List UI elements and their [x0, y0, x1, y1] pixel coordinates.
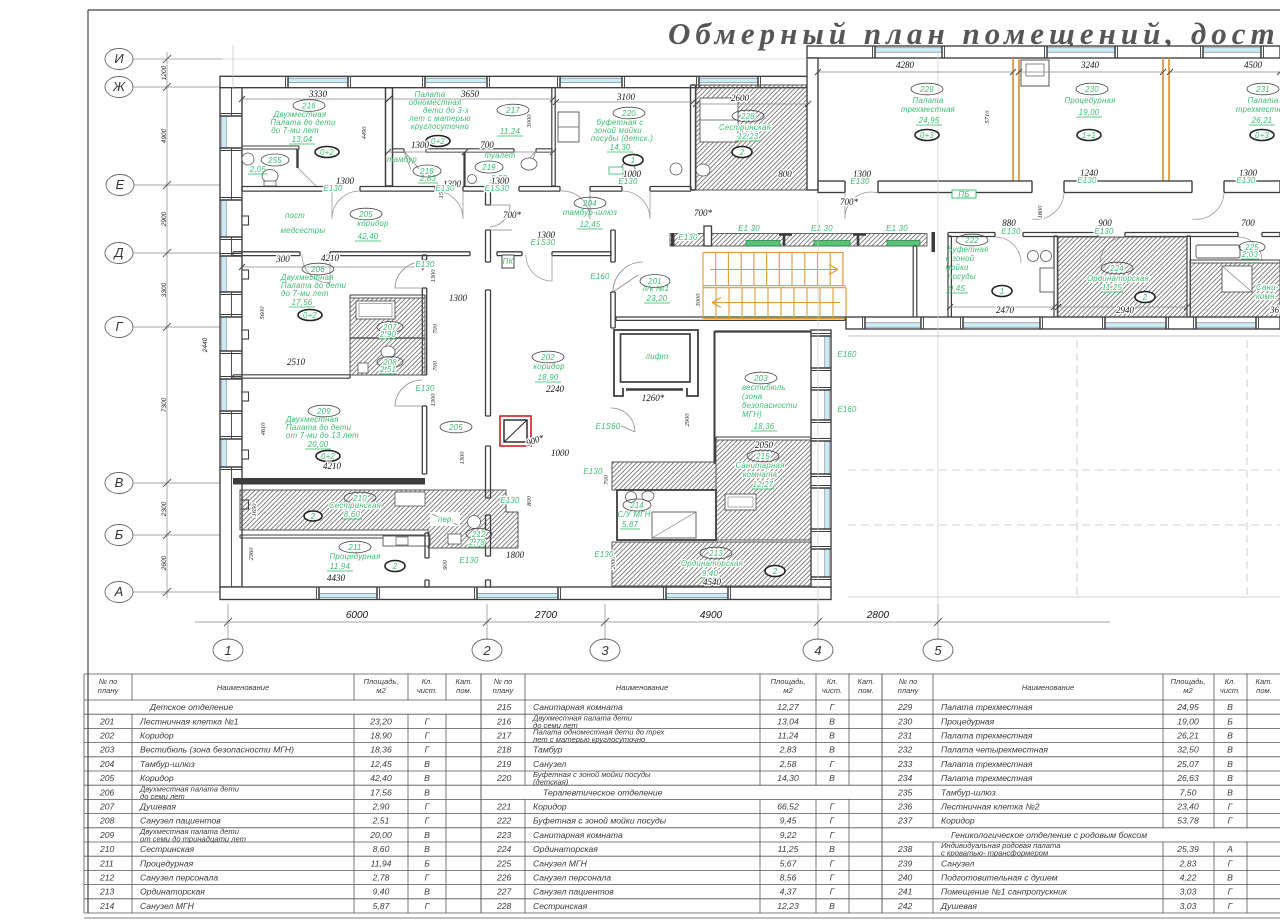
svg-text:№ по: № по — [99, 677, 118, 686]
svg-text:23,40: 23,40 — [1176, 802, 1199, 812]
svg-text:Б: Б — [424, 858, 430, 868]
svg-text:Геникологическое отделение с р: Геникологическое отделение с родовым бок… — [951, 830, 1147, 840]
svg-text:В: В — [424, 787, 430, 797]
svg-text:Лестничная клетка №2: Лестничная клетка №2 — [940, 802, 1040, 812]
svg-text:234: 234 — [897, 773, 913, 783]
svg-text:230: 230 — [1084, 85, 1099, 94]
svg-text:от семи до тринадцати лет: от семи до тринадцати лет — [140, 835, 246, 844]
svg-text:Санитарная: Санитарная — [735, 461, 785, 470]
svg-text:вестибюль: вестибюль — [742, 383, 786, 392]
svg-text:204: 204 — [99, 759, 115, 769]
svg-text:700: 700 — [480, 140, 494, 150]
svg-text:240: 240 — [897, 873, 913, 883]
svg-text:5,67: 5,67 — [780, 858, 798, 868]
svg-text:224: 224 — [496, 844, 512, 854]
svg-text:11,94: 11,94 — [371, 858, 392, 868]
svg-text:E130: E130 — [415, 260, 435, 269]
svg-text:700*: 700* — [694, 208, 713, 218]
svg-text:В: В — [1227, 773, 1233, 783]
svg-text:700: 700 — [1241, 218, 1255, 228]
svg-text:1300: 1300 — [411, 140, 430, 150]
svg-text:В: В — [424, 773, 430, 783]
svg-text:0+2: 0+2 — [431, 137, 445, 146]
svg-text:2: 2 — [310, 512, 316, 521]
svg-text:В: В — [424, 887, 430, 897]
svg-text:Кат.: Кат. — [1255, 677, 1272, 686]
svg-text:Санузел персонала: Санузел персонала — [140, 873, 218, 883]
svg-text:231: 231 — [897, 731, 913, 741]
svg-text:9,45: 9,45 — [949, 284, 966, 293]
svg-text:32,50: 32,50 — [1177, 745, 1199, 755]
svg-text:коридор: коридор — [357, 219, 389, 228]
svg-text:м2: м2 — [1183, 686, 1193, 695]
svg-text:Палата: Палата — [913, 96, 944, 105]
svg-text:1300: 1300 — [430, 393, 437, 407]
svg-text:2600: 2600 — [731, 93, 750, 103]
svg-text:208: 208 — [99, 816, 115, 826]
svg-text:2,83: 2,83 — [779, 745, 797, 755]
svg-text:E130: E130 — [618, 177, 638, 186]
svg-text:Палата трехместная: Палата трехместная — [941, 731, 1033, 741]
svg-text:215: 215 — [496, 702, 512, 712]
svg-text:безопасности: безопасности — [742, 401, 798, 410]
svg-text:4210: 4210 — [321, 253, 340, 263]
svg-text:14,30: 14,30 — [610, 143, 631, 152]
svg-text:E1S30: E1S30 — [531, 238, 556, 247]
svg-text:трехместная: трехместная — [1236, 105, 1280, 114]
svg-text:2600: 2600 — [161, 555, 168, 571]
svg-text:E130: E130 — [415, 384, 435, 393]
svg-text:5,87: 5,87 — [622, 520, 639, 529]
svg-text:2050: 2050 — [755, 440, 774, 450]
svg-text:Палата трехместная: Палата трехместная — [941, 773, 1033, 783]
svg-text:9,22: 9,22 — [780, 830, 797, 840]
svg-text:Кл.: Кл. — [827, 677, 838, 686]
svg-text:19,00: 19,00 — [1177, 716, 1199, 726]
svg-text:4490: 4490 — [361, 126, 368, 140]
svg-text:2,51: 2,51 — [379, 365, 396, 374]
svg-text:трехместная: трехместная — [901, 105, 956, 114]
svg-text:1300: 1300 — [449, 293, 468, 303]
svg-text:с кроватью- трансформером: с кроватью- трансформером — [941, 849, 1049, 858]
svg-text:215: 215 — [755, 452, 770, 461]
svg-text:А: А — [1226, 844, 1233, 854]
svg-text:13,04: 13,04 — [777, 716, 799, 726]
svg-text:Сестринская: Сестринская — [140, 844, 195, 854]
svg-text:2: 2 — [392, 562, 398, 571]
svg-text:В: В — [829, 716, 835, 726]
svg-text:5710: 5710 — [984, 110, 991, 124]
svg-text:2470: 2470 — [996, 305, 1015, 315]
svg-text:1800: 1800 — [1037, 205, 1044, 219]
svg-text:2,83: 2,83 — [1179, 858, 1197, 868]
svg-text:5: 5 — [934, 643, 942, 658]
svg-text:1300: 1300 — [459, 451, 466, 465]
svg-text:219: 219 — [481, 163, 496, 172]
svg-text:Ординаторская: Ординаторская — [533, 844, 598, 854]
svg-text:0+2: 0+2 — [303, 311, 317, 320]
svg-text:В: В — [1227, 702, 1233, 712]
svg-text:4210: 4210 — [323, 461, 342, 471]
svg-text:Терапевтическое отделение: Терапевтическое отделение — [543, 787, 663, 797]
svg-text:220: 220 — [621, 109, 636, 118]
svg-text:202: 202 — [99, 731, 115, 741]
svg-text:23,20: 23,20 — [646, 294, 668, 303]
svg-text:посуды: посуды — [948, 272, 976, 281]
svg-text:2240: 2240 — [546, 384, 565, 394]
svg-text:233: 233 — [897, 759, 913, 769]
svg-text:3670: 3670 — [1269, 305, 1280, 315]
svg-text:№ по: № по — [899, 677, 918, 686]
svg-text:В: В — [829, 745, 835, 755]
svg-text:Кл.: Кл. — [1225, 677, 1236, 686]
svg-text:25,39: 25,39 — [1176, 844, 1199, 854]
svg-text:3000: 3000 — [695, 293, 702, 308]
svg-text:Площадь,: Площадь, — [1170, 677, 1205, 686]
svg-text:217: 217 — [496, 731, 513, 741]
svg-text:В: В — [424, 844, 430, 854]
svg-text:14,30: 14,30 — [777, 773, 799, 783]
svg-text:комната: комната — [743, 470, 778, 479]
svg-text:до семи лет: до семи лет — [140, 792, 185, 801]
svg-text:5,87: 5,87 — [373, 901, 391, 911]
svg-text:В: В — [1227, 731, 1233, 741]
svg-text:E1S60: E1S60 — [596, 422, 621, 431]
svg-text:E1 30: E1 30 — [811, 224, 833, 233]
svg-text:2,58: 2,58 — [779, 759, 797, 769]
svg-text:м2: м2 — [376, 686, 386, 695]
svg-text:Санузел МГН: Санузел МГН — [140, 901, 195, 911]
svg-text:213: 213 — [99, 887, 115, 897]
svg-text:23,20: 23,20 — [369, 716, 392, 726]
svg-text:медсестры: медсестры — [281, 226, 326, 235]
svg-text:Процедурная: Процедурная — [1064, 96, 1116, 105]
svg-text:E160: E160 — [837, 350, 857, 359]
svg-text:плану: плану — [493, 686, 515, 695]
svg-text:2360: 2360 — [248, 547, 255, 561]
svg-text:2: 2 — [739, 148, 745, 157]
svg-text:от 7-ми до 13 лет: от 7-ми до 13 лет — [286, 431, 359, 440]
svg-text:посуды (детск.): посуды (детск.) — [591, 134, 653, 143]
svg-text:2300: 2300 — [161, 501, 168, 517]
svg-text:3240: 3240 — [1080, 60, 1100, 70]
svg-text:Кат.: Кат. — [857, 677, 874, 686]
svg-text:66,52: 66,52 — [777, 802, 799, 812]
svg-text:8,60: 8,60 — [373, 844, 390, 854]
svg-text:229: 229 — [919, 85, 934, 94]
svg-text:216: 216 — [496, 716, 512, 726]
svg-text:700*: 700* — [503, 210, 522, 220]
svg-text:Кл.: Кл. — [422, 677, 433, 686]
svg-text:203: 203 — [753, 374, 768, 383]
svg-text:Санитарная комната: Санитарная комната — [533, 702, 623, 712]
svg-text:Б: Б — [115, 527, 124, 542]
svg-text:26,21: 26,21 — [1251, 116, 1273, 125]
svg-text:тамбур: тамбур — [387, 155, 417, 164]
svg-text:800: 800 — [778, 169, 792, 179]
svg-text:3000: 3000 — [526, 114, 533, 129]
svg-text:12,45: 12,45 — [580, 220, 601, 229]
svg-text:53,78: 53,78 — [1177, 816, 1199, 826]
svg-text:чист.: чист. — [1220, 686, 1240, 695]
svg-text:ПК: ПК — [503, 257, 514, 266]
svg-text:2: 2 — [1142, 293, 1148, 302]
svg-text:пост: пост — [285, 211, 305, 220]
svg-text:4430: 4430 — [327, 573, 346, 583]
svg-text:В: В — [1227, 873, 1233, 883]
svg-text:Тамбур-шлюз: Тамбур-шлюз — [941, 787, 996, 797]
svg-text:230: 230 — [897, 716, 913, 726]
svg-text:Ординаторская: Ординаторская — [681, 559, 744, 568]
svg-text:E1 30: E1 30 — [886, 224, 908, 233]
svg-text:4500: 4500 — [1244, 60, 1263, 70]
svg-text:E160: E160 — [837, 405, 857, 414]
svg-text:26,21: 26,21 — [1176, 731, 1199, 741]
svg-text:Буфетная с зоной мойки посуды: Буфетная с зоной мойки посуды — [533, 816, 667, 826]
svg-text:18,36: 18,36 — [754, 422, 775, 431]
svg-text:Буфетная: Буфетная — [948, 245, 990, 254]
svg-text:2510: 2510 — [287, 357, 306, 367]
svg-text:E130: E130 — [1236, 176, 1256, 185]
svg-text:В: В — [1227, 787, 1233, 797]
svg-text:227: 227 — [496, 887, 513, 897]
svg-text:228: 228 — [740, 112, 755, 121]
svg-text:Ординаторская: Ординаторская — [140, 887, 205, 897]
svg-text:Помещение №1 санпропускник: Помещение №1 санпропускник — [941, 887, 1068, 897]
svg-text:12,27: 12,27 — [753, 480, 774, 489]
svg-text:E130: E130 — [1094, 227, 1114, 236]
svg-text:Душевая: Душевая — [940, 901, 977, 911]
svg-text:24,95: 24,95 — [1176, 702, 1199, 712]
svg-text:26,63: 26,63 — [1176, 773, 1199, 783]
svg-text:лифт: лифт — [645, 352, 669, 361]
svg-text:1: 1 — [1000, 287, 1005, 296]
svg-text:E1S30: E1S30 — [485, 184, 510, 193]
svg-text:до 7-ми лет: до 7-ми лет — [271, 126, 319, 135]
svg-text:1: 1 — [631, 156, 636, 165]
svg-text:круглосуточно: круглосуточно — [411, 122, 470, 131]
svg-text:чист.: чист. — [822, 686, 842, 695]
svg-text:2: 2 — [772, 567, 778, 576]
svg-text:И: И — [114, 51, 124, 66]
svg-text:3,03: 3,03 — [1180, 901, 1197, 911]
svg-text:17,56: 17,56 — [292, 298, 313, 307]
svg-text:0+3: 0+3 — [920, 131, 934, 140]
svg-text:пом.: пом. — [1256, 686, 1272, 695]
svg-text:тамбур-шлюз: тамбур-шлюз — [563, 208, 617, 217]
svg-text:2900: 2900 — [684, 413, 691, 427]
svg-text:Площадь,: Площадь, — [770, 677, 805, 686]
svg-text:2,90: 2,90 — [379, 330, 397, 339]
svg-text:E1 30: E1 30 — [738, 224, 760, 233]
svg-text:4900: 4900 — [700, 610, 723, 621]
svg-text:1800: 1800 — [506, 550, 525, 560]
svg-text:0+3: 0+3 — [1255, 131, 1269, 140]
svg-text:4610: 4610 — [260, 422, 267, 436]
svg-text:(зона: (зона — [742, 392, 763, 401]
svg-text:205: 205 — [448, 423, 463, 432]
svg-text:1000: 1000 — [551, 448, 570, 458]
svg-text:3,03: 3,03 — [1180, 887, 1197, 897]
svg-text:Ж: Ж — [112, 79, 126, 94]
svg-text:18,36: 18,36 — [370, 745, 392, 755]
svg-text:E130: E130 — [459, 556, 479, 565]
svg-text:Процедурная: Процедурная — [941, 716, 995, 726]
svg-text:Санузел пациентов: Санузел пациентов — [533, 887, 614, 897]
svg-text:3300: 3300 — [161, 282, 168, 297]
svg-text:24,95: 24,95 — [918, 116, 940, 125]
svg-text:238: 238 — [897, 844, 913, 854]
svg-text:800: 800 — [526, 495, 533, 506]
svg-text:2,51: 2,51 — [372, 816, 390, 826]
svg-text:С/У МГН: С/У МГН — [617, 510, 650, 519]
svg-text:225: 225 — [496, 858, 512, 868]
svg-text:205: 205 — [358, 210, 373, 219]
svg-text:222: 222 — [964, 236, 979, 245]
svg-text:255: 255 — [267, 156, 282, 165]
svg-text:2,83: 2,83 — [419, 174, 437, 183]
svg-text:Сестринская: Сестринская — [329, 501, 382, 510]
svg-text:4900: 4900 — [161, 128, 168, 143]
svg-text:Вестибюль (зона безопасности М: Вестибюль (зона безопасности МГН) — [140, 745, 294, 755]
svg-text:42,40: 42,40 — [370, 773, 392, 783]
svg-text:1650: 1650 — [251, 503, 258, 517]
svg-text:220: 220 — [496, 773, 512, 783]
svg-text:1200: 1200 — [161, 65, 168, 80]
svg-text:Наименование: Наименование — [217, 683, 269, 692]
svg-text:Санузел пациентов: Санузел пациентов — [140, 816, 221, 826]
svg-text:E130: E130 — [678, 233, 698, 242]
svg-text:211: 211 — [347, 543, 361, 552]
svg-text:11,24: 11,24 — [500, 127, 521, 136]
svg-text:Тамбур: Тамбур — [533, 745, 563, 755]
svg-text:Санитарная комната: Санитарная комната — [533, 830, 623, 840]
svg-text:20,00: 20,00 — [369, 830, 392, 840]
svg-text:9,40: 9,40 — [373, 887, 390, 897]
svg-text:3100: 3100 — [616, 92, 636, 102]
svg-text:900: 900 — [442, 559, 449, 570]
svg-text:2,03: 2,03 — [1241, 250, 1259, 259]
svg-text:1: 1 — [224, 643, 231, 658]
svg-text:228: 228 — [496, 901, 512, 911]
svg-text:700*: 700* — [840, 197, 859, 207]
svg-text:0+2: 0+2 — [320, 148, 334, 157]
svg-text:18,90: 18,90 — [538, 373, 559, 382]
svg-text:№ по: № по — [494, 677, 513, 686]
svg-text:В: В — [424, 759, 430, 769]
svg-text:Санузел: Санузел — [941, 858, 975, 868]
svg-text:700: 700 — [603, 474, 610, 485]
svg-text:коридор: коридор — [533, 362, 565, 371]
svg-text:1260*: 1260* — [642, 393, 665, 403]
svg-text:Площадь,: Площадь, — [363, 677, 398, 686]
svg-text:Г: Г — [115, 319, 123, 334]
svg-text:12,27: 12,27 — [777, 702, 800, 712]
svg-text:МГН): МГН) — [742, 410, 762, 419]
svg-text:11,25: 11,25 — [778, 844, 799, 854]
svg-text:209: 209 — [99, 830, 115, 840]
svg-text:3330: 3330 — [308, 89, 328, 99]
svg-text:4,37: 4,37 — [780, 887, 798, 897]
svg-text:11,94: 11,94 — [330, 562, 351, 571]
svg-text:Палата трехместная: Палата трехместная — [941, 702, 1033, 712]
svg-text:0+2: 0+2 — [321, 452, 335, 461]
svg-text:201: 201 — [99, 716, 115, 726]
svg-text:Душевая: Душевая — [139, 802, 176, 812]
svg-text:8,56: 8,56 — [780, 873, 797, 883]
svg-text:231: 231 — [1255, 85, 1270, 94]
svg-text:(детская): (детская) — [533, 778, 569, 787]
svg-text:700: 700 — [432, 360, 439, 371]
svg-text:222: 222 — [496, 816, 512, 826]
svg-text:Д: Д — [112, 245, 123, 260]
svg-text:5600: 5600 — [259, 306, 266, 320]
svg-text:219: 219 — [496, 759, 512, 769]
svg-text:239: 239 — [897, 858, 913, 868]
svg-text:2,78: 2,78 — [372, 873, 390, 883]
svg-text:туалет: туалет — [484, 151, 515, 160]
svg-text:2940: 2940 — [1116, 305, 1135, 315]
svg-text:плану: плану — [98, 686, 120, 695]
svg-text:E130: E130 — [583, 467, 603, 476]
svg-text:214: 214 — [629, 501, 644, 510]
svg-text:7300: 7300 — [161, 397, 168, 412]
svg-text:2700: 2700 — [534, 610, 558, 621]
svg-text:25,07: 25,07 — [1176, 759, 1200, 769]
svg-text:В: В — [1227, 745, 1233, 755]
svg-text:Коридор: Коридор — [140, 731, 174, 741]
svg-text:236: 236 — [897, 802, 913, 812]
svg-text:E130: E130 — [1077, 176, 1097, 185]
svg-text:13,04: 13,04 — [292, 135, 313, 144]
svg-text:Лестничная клетка №1: Лестничная клетка №1 — [139, 716, 239, 726]
svg-text:4,22: 4,22 — [1180, 873, 1197, 883]
svg-text:В: В — [829, 901, 835, 911]
svg-text:2,05: 2,05 — [249, 165, 267, 174]
svg-text:с зоной: с зоной — [946, 254, 975, 263]
svg-text:2: 2 — [482, 643, 491, 658]
svg-text:E130: E130 — [323, 184, 343, 193]
svg-text:12,23: 12,23 — [738, 132, 759, 141]
svg-text:Детское отделение: Детское отделение — [149, 702, 233, 712]
svg-text:202: 202 — [540, 353, 555, 362]
svg-text:Процедурная: Процедурная — [329, 552, 381, 561]
svg-text:3650: 3650 — [460, 89, 480, 99]
svg-text:229: 229 — [897, 702, 913, 712]
svg-text:2900: 2900 — [161, 211, 168, 227]
svg-text:218: 218 — [496, 745, 512, 755]
svg-text:E160: E160 — [590, 272, 610, 281]
svg-text:Коридор: Коридор — [140, 773, 174, 783]
svg-text:Подготовительная с душем: Подготовительная с душем — [941, 873, 1058, 883]
svg-text:В: В — [115, 475, 124, 490]
svg-text:комн.: комн. — [1256, 292, 1277, 301]
svg-text:1+1: 1+1 — [1082, 131, 1096, 140]
svg-text:Палата трехместная: Палата трехместная — [941, 759, 1033, 769]
svg-text:Кат.: Кат. — [455, 677, 472, 686]
svg-text:213: 213 — [708, 549, 723, 558]
svg-text:мойки: мойки — [945, 263, 969, 272]
svg-text:9,45: 9,45 — [780, 816, 797, 826]
svg-text:12,45: 12,45 — [370, 759, 392, 769]
svg-text:4280: 4280 — [896, 60, 915, 70]
svg-text:3: 3 — [601, 643, 609, 658]
svg-text:E130: E130 — [435, 184, 455, 193]
svg-text:241: 241 — [897, 887, 913, 897]
svg-text:6000: 6000 — [346, 610, 369, 621]
svg-text:217: 217 — [505, 106, 520, 115]
svg-text:42,40: 42,40 — [358, 232, 379, 241]
